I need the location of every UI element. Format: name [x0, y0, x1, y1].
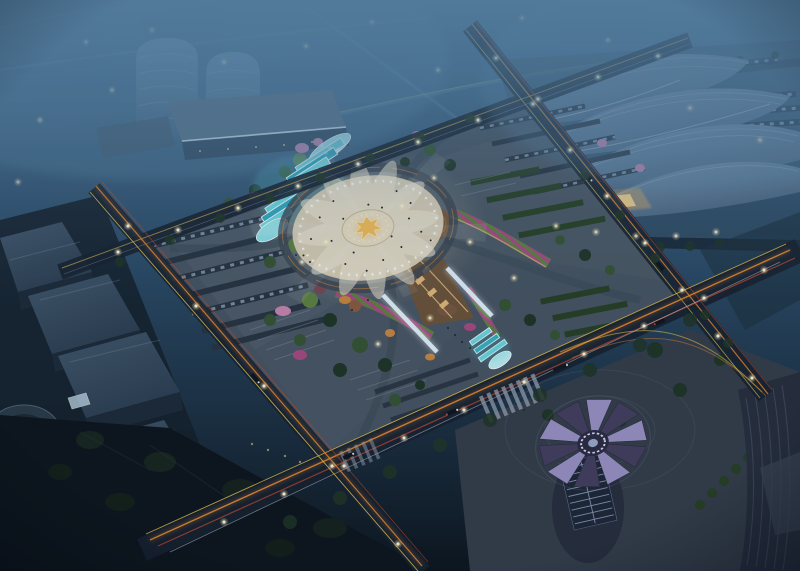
night-plaza-rendering: Night aerial rendering of an illuminated… [0, 0, 800, 571]
rendering-canvas: Night aerial rendering of an illuminated… [0, 0, 800, 571]
vignette [0, 0, 800, 571]
